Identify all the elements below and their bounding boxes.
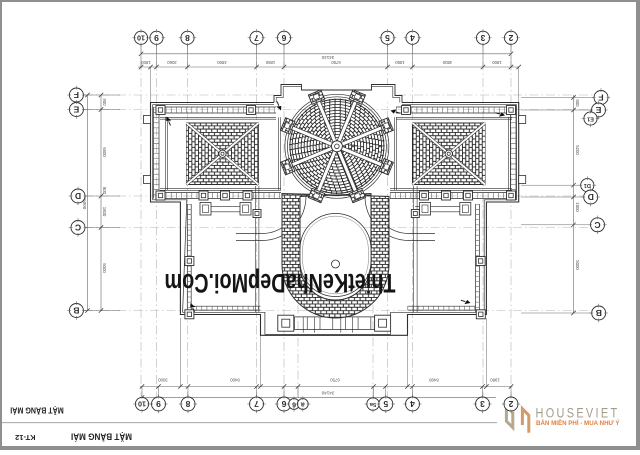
svg-text:6: 6 [281, 399, 286, 409]
svg-text:8: 8 [185, 33, 190, 43]
svg-text:C: C [75, 223, 81, 233]
svg-text:E: E [73, 105, 79, 115]
svg-text:8400: 8400 [230, 378, 240, 383]
svg-text:8408: 8408 [429, 378, 439, 383]
svg-text:D1: D1 [584, 182, 591, 188]
svg-text:800: 800 [102, 187, 107, 195]
svg-text:2: 2 [508, 399, 513, 409]
svg-text:B: B [596, 308, 602, 318]
svg-text:1980: 1980 [490, 378, 500, 383]
svg-text:MẶT BẰNG MÁI: MẶT BẰNG MÁI [10, 406, 64, 415]
svg-text:34140: 34140 [321, 55, 334, 60]
svg-text:1850: 1850 [395, 60, 405, 65]
svg-text:5a: 5a [369, 401, 376, 407]
svg-text:6750: 6750 [330, 378, 340, 383]
svg-text:BẢN MIỄN PHÍ - MUA NHƯ Ý: BẢN MIỄN PHÍ - MUA NHƯ Ý [536, 419, 620, 427]
svg-text:F: F [74, 90, 79, 100]
svg-text:7: 7 [254, 33, 259, 43]
svg-text:9: 9 [156, 399, 161, 409]
svg-text:5000: 5000 [575, 260, 580, 270]
svg-text:4800: 4800 [217, 60, 227, 65]
svg-text:E: E [595, 105, 601, 115]
svg-text:8: 8 [185, 399, 190, 409]
svg-text:34140: 34140 [321, 390, 334, 395]
svg-text:C: C [594, 220, 600, 230]
svg-text:B: B [73, 306, 79, 316]
svg-text:4: 4 [410, 399, 415, 409]
svg-text:10: 10 [137, 33, 145, 42]
svg-text:1800: 1800 [102, 207, 107, 217]
svg-text:3000: 3000 [158, 378, 168, 383]
svg-text:5000: 5000 [102, 263, 107, 273]
svg-text:KT-12: KT-12 [15, 433, 35, 442]
svg-text:6: 6 [281, 33, 286, 43]
svg-text:3: 3 [480, 399, 485, 409]
svg-text:a: a [301, 401, 305, 408]
svg-text:4: 4 [410, 33, 415, 43]
svg-text:MẶT BẰNG MÁI: MẶT BẰNG MÁI [71, 432, 132, 442]
svg-text:HOUSEVIET: HOUSEVIET [536, 404, 620, 420]
svg-text:1800: 1800 [141, 60, 151, 65]
svg-text:2: 2 [508, 33, 513, 43]
svg-text:F: F [598, 93, 603, 103]
svg-text:7: 7 [254, 399, 259, 409]
svg-text:5200: 5200 [575, 145, 580, 155]
svg-text:1800: 1800 [492, 60, 502, 65]
svg-text:1850: 1850 [265, 60, 275, 65]
svg-text:10: 10 [138, 400, 146, 409]
svg-text:5: 5 [383, 399, 388, 409]
svg-text:800: 800 [575, 99, 580, 107]
svg-text:6500: 6500 [102, 147, 107, 157]
svg-text:3060: 3060 [167, 60, 177, 65]
svg-text:D: D [588, 192, 594, 202]
svg-text:E1: E1 [587, 116, 594, 122]
svg-text:4800: 4800 [442, 60, 452, 65]
svg-text:900: 900 [102, 98, 107, 106]
svg-text:D: D [75, 191, 81, 201]
svg-text:3: 3 [480, 33, 485, 43]
svg-text:5: 5 [385, 33, 390, 43]
svg-text:9: 9 [154, 33, 159, 43]
svg-text:1800: 1800 [575, 202, 580, 212]
svg-text:ThietKeNhaDepMoi.Com: ThietKeNhaDepMoi.Com [165, 268, 396, 298]
